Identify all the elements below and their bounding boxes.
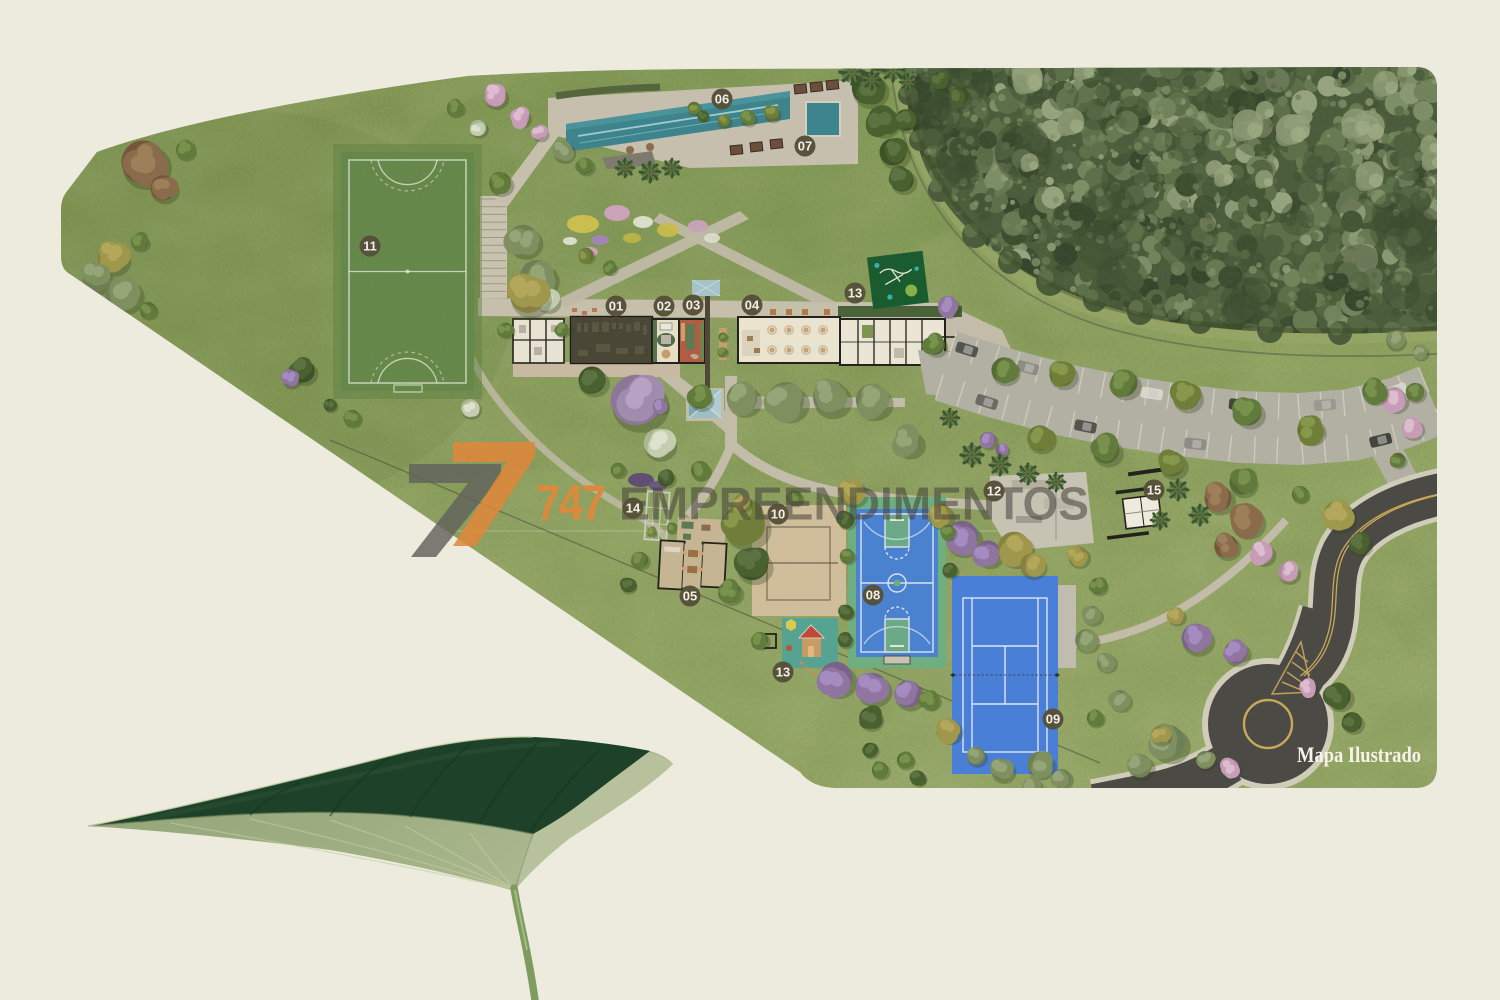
svg-text:05: 05	[683, 588, 697, 603]
svg-text:10: 10	[771, 506, 785, 521]
svg-text:03: 03	[686, 297, 700, 312]
svg-text:11: 11	[363, 238, 377, 253]
svg-text:Mapa Ilustrado: Mapa Ilustrado	[1297, 742, 1421, 767]
svg-text:07: 07	[798, 138, 812, 153]
svg-text:02: 02	[657, 298, 671, 313]
svg-text:15: 15	[1147, 482, 1161, 497]
svg-text:747: 747	[536, 475, 604, 531]
svg-text:08: 08	[866, 587, 880, 602]
svg-text:14: 14	[626, 500, 641, 515]
svg-text:13: 13	[848, 285, 862, 300]
svg-text:12: 12	[987, 483, 1001, 498]
svg-text:13: 13	[776, 664, 790, 679]
svg-text:EMPREENDIMENTOS: EMPREENDIMENTOS	[619, 478, 1089, 530]
svg-text:01: 01	[609, 298, 623, 313]
svg-text:06: 06	[715, 91, 729, 106]
svg-text:04: 04	[745, 297, 760, 312]
svg-text:09: 09	[1046, 711, 1060, 726]
